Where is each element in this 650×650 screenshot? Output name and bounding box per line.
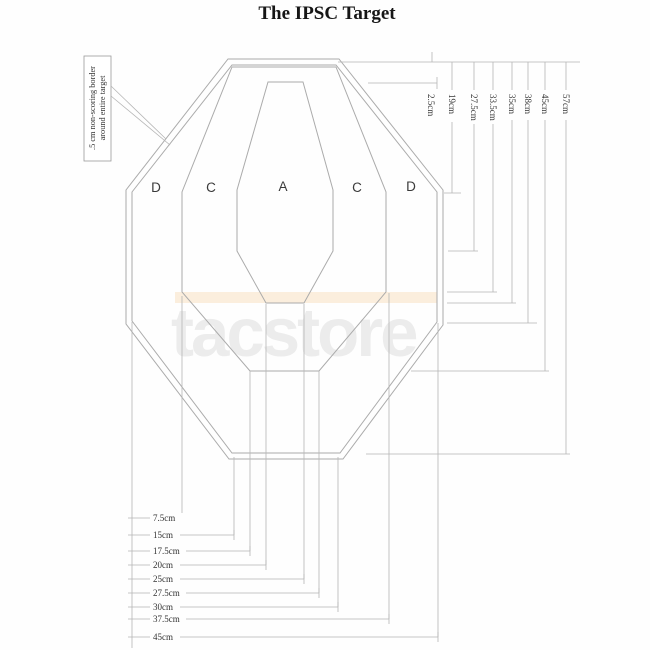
dim-bottom-30cm: 30cm bbox=[153, 602, 173, 612]
dim-bottom-17-5cm: 17.5cm bbox=[153, 546, 180, 556]
dim-bottom-45cm: 45cm bbox=[153, 632, 173, 642]
dim-right-38cm: 38cm bbox=[523, 94, 533, 114]
dim-right-27-5cm: 27.5cm bbox=[469, 94, 479, 121]
zone-letter-d-right: D bbox=[406, 179, 416, 194]
target-shapes bbox=[126, 59, 443, 459]
border-label-line1: .5 cm non-scoring border bbox=[88, 66, 97, 150]
dim-right-2-5cm: 2.5cm bbox=[426, 94, 436, 116]
zone-letters: D C A C D bbox=[151, 179, 416, 195]
zone-letter-d-left: D bbox=[151, 180, 161, 195]
target-outer-octagon bbox=[126, 59, 443, 459]
dim-right-57cm: 57cm bbox=[561, 94, 571, 114]
zone-letter-a: A bbox=[278, 179, 287, 194]
dim-bottom-20cm: 20cm bbox=[153, 560, 173, 570]
dim-bottom-27-5cm: 27.5cm bbox=[153, 588, 180, 598]
border-label-line2: around entire target bbox=[98, 75, 107, 141]
page-title: The IPSC Target bbox=[258, 3, 396, 24]
dim-bottom-25cm: 25cm bbox=[153, 574, 173, 584]
border-callout-leaders bbox=[111, 86, 170, 145]
zone-letter-c-right: C bbox=[352, 180, 362, 195]
ipsc-target-diagram-page: tacstore The IPSC Target D C A C D .5 cm… bbox=[0, 0, 650, 650]
dim-bottom-15cm: 15cm bbox=[153, 530, 173, 540]
dim-right-19cm: 19cm bbox=[447, 94, 457, 114]
watermark-text: tacstore bbox=[171, 294, 417, 371]
zone-letter-c-left: C bbox=[206, 180, 216, 195]
dim-right-45cm: 45cm bbox=[540, 94, 550, 114]
border-callout: .5 cm non-scoring border around entire t… bbox=[84, 56, 170, 161]
ipsc-target-diagram: tacstore The IPSC Target D C A C D .5 cm… bbox=[0, 0, 650, 650]
dim-right-35cm: 35cm bbox=[507, 94, 517, 114]
dim-right-33-5cm: 33.5cm bbox=[488, 94, 498, 121]
dim-bottom-37-5cm: 37.5cm bbox=[153, 614, 180, 624]
dim-bottom-7-5cm: 7.5cm bbox=[153, 513, 175, 523]
